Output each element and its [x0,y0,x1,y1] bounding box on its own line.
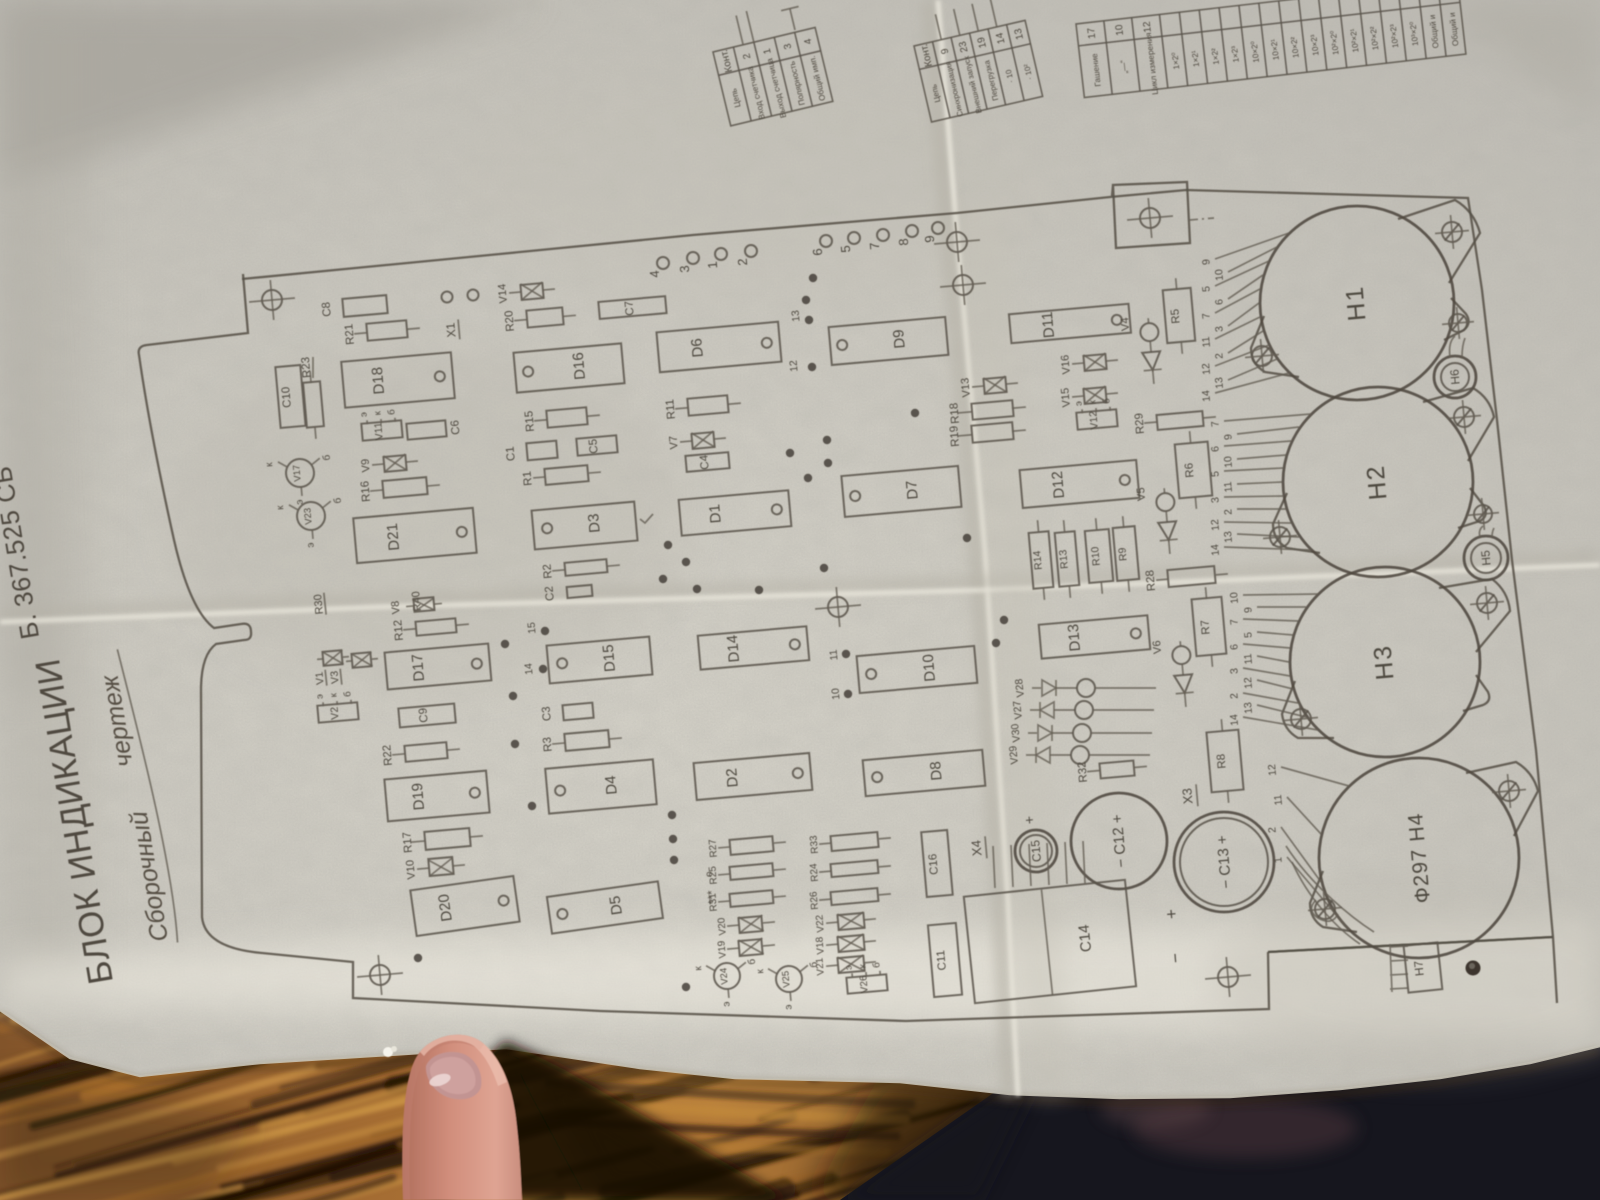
svg-text:8: 8 [896,238,912,247]
svg-text:C3: C3 [541,706,554,722]
svg-text:V28: V28 [1013,678,1027,698]
svg-text:+: + [1162,908,1182,920]
svg-text:3: 3 [1228,667,1240,674]
svg-text:C10: C10 [280,386,294,408]
svg-text:D14: D14 [724,634,743,663]
svg-text:2: 2 [735,258,751,267]
svg-text:C8: C8 [321,301,334,317]
svg-text:D15: D15 [600,644,619,673]
svg-text:C6: C6 [449,420,462,436]
svg-text:10: 10 [1213,268,1226,281]
svg-text:V15: V15 [1059,387,1073,408]
svg-text:10: 10 [1228,591,1241,604]
svg-text:V6: V6 [1151,640,1164,654]
svg-text:C16: C16 [927,853,941,875]
svg-text:R33: R33 [808,834,821,854]
svg-text:C4: C4 [698,454,711,470]
svg-text:R12: R12 [392,619,406,641]
svg-text:6: 6 [810,248,826,257]
svg-text:10: 10 [830,688,843,701]
svg-text:V9: V9 [360,458,373,472]
svg-text:13: 13 [1242,701,1255,714]
svg-text:R7: R7 [1199,619,1212,635]
svg-text:V16: V16 [1059,354,1073,375]
svg-text:17: 17 [1086,27,1098,40]
svg-text:11: 11 [1242,653,1255,665]
svg-text:V4: V4 [1119,317,1132,331]
svg-text:R21: R21 [343,323,357,345]
svg-text:V1: V1 [313,671,326,685]
svg-text:11: 11 [1200,336,1213,348]
svg-text:7: 7 [1200,312,1212,319]
svg-text:D12: D12 [1049,470,1068,499]
svg-text:D16: D16 [570,352,589,381]
svg-text:D9: D9 [890,329,909,350]
svg-text:12: 12 [788,360,801,373]
svg-text:6: 6 [1228,643,1240,650]
svg-text:R17: R17 [401,831,415,853]
svg-text:11: 11 [828,649,841,661]
svg-text:9: 9 [922,235,938,244]
svg-text:−: − [1166,952,1186,964]
svg-text:D8: D8 [927,761,946,782]
svg-text:R24: R24 [808,862,821,882]
svg-text:D7: D7 [903,480,922,501]
svg-text:+: + [1021,815,1038,825]
svg-text:V10: V10 [404,859,418,880]
svg-text:H7: H7 [1411,960,1427,977]
svg-text:1×2²: 1×2² [1210,47,1221,65]
svg-text:7: 7 [867,242,883,251]
svg-text:D1: D1 [706,503,725,524]
svg-text:D4: D4 [602,775,621,796]
svg-text:R11: R11 [664,399,678,420]
svg-text:D21: D21 [384,522,403,551]
svg-text:C9: C9 [417,707,430,723]
svg-text:D11: D11 [1039,311,1058,339]
svg-text:12: 12 [1266,763,1279,776]
svg-text:3: 3 [677,265,693,274]
svg-text:R27: R27 [707,838,720,858]
svg-text:5: 5 [838,245,854,254]
svg-text:14: 14 [523,663,536,676]
svg-text:H2: H2 [1361,463,1392,501]
svg-text:14: 14 [1209,543,1222,556]
svg-text:э: э [305,542,316,548]
svg-text:V12: V12 [1087,410,1101,430]
svg-text:V2: V2 [328,706,341,720]
svg-text:V18: V18 [814,936,827,955]
svg-text:„—“: „—“ [1119,59,1130,74]
svg-text:6: 6 [1213,298,1225,305]
svg-text:R15: R15 [523,410,537,432]
svg-text:2: 2 [1228,692,1240,699]
svg-text:R26: R26 [808,890,821,910]
svg-text:R10: R10 [1089,546,1103,566]
svg-text:R28: R28 [1144,570,1158,592]
svg-text:3: 3 [1213,325,1225,332]
svg-text:V27: V27 [1011,700,1025,720]
svg-text:5: 5 [1242,631,1254,638]
svg-text:D3: D3 [585,513,604,534]
svg-text:C1: C1 [505,446,518,462]
svg-text:14: 14 [1200,389,1213,402]
svg-text:R14: R14 [1031,550,1045,570]
svg-text:R18: R18 [948,402,962,424]
svg-text:V26: V26 [858,974,871,993]
svg-text:э: э [721,1001,732,1007]
svg-text:D19: D19 [409,782,428,811]
svg-text:R13: R13 [1057,549,1071,569]
svg-text:9: 9 [1200,258,1212,265]
svg-text:6: 6 [1209,445,1221,452]
svg-text:15: 15 [526,622,539,635]
svg-text:9: 9 [1222,433,1234,440]
svg-text:V29: V29 [1007,745,1021,765]
svg-text:э: э [783,1004,794,1010]
svg-text:X4: X4 [968,840,984,857]
svg-text:5: 5 [1200,285,1212,292]
svg-text:2: 2 [1222,508,1234,515]
svg-text:V7: V7 [668,435,681,449]
svg-text:V22: V22 [814,914,827,933]
svg-text:C5: C5 [587,438,600,454]
svg-text:12: 12 [1200,362,1213,375]
svg-text:V3: V3 [328,670,341,684]
svg-text:12: 12 [1209,518,1222,531]
svg-text:V5: V5 [1135,487,1148,501]
svg-text:R20: R20 [503,310,517,332]
svg-text:H1: H1 [1340,284,1371,322]
svg-text:***: *** [704,889,719,905]
svg-text:D13: D13 [1065,623,1084,652]
svg-text:R5: R5 [1169,308,1182,324]
svg-text:D2: D2 [723,767,742,788]
svg-text:Н6: Н6 [1447,368,1462,385]
svg-text:R1: R1 [522,471,535,487]
svg-text:2: 2 [1266,826,1278,833]
svg-text:V17: V17 [291,464,303,482]
svg-text:C11: C11 [935,950,949,971]
svg-text:R8: R8 [1215,753,1228,769]
svg-text:7: 7 [1228,618,1240,625]
svg-text:1: 1 [705,261,721,270]
svg-text:14: 14 [1228,713,1241,726]
svg-text:13: 13 [1213,376,1226,389]
svg-text:C14: C14 [1075,924,1095,953]
svg-text:Н5: Н5 [1478,549,1493,566]
svg-text:2: 2 [1213,352,1225,359]
svg-text:R16: R16 [359,480,373,502]
svg-text:H3: H3 [1368,643,1399,681]
svg-text:V13: V13 [959,377,973,398]
svg-text:11: 11 [1272,794,1285,806]
svg-text:D10: D10 [920,653,939,682]
svg-text:D18: D18 [369,366,388,395]
svg-text:R3: R3 [542,737,555,753]
svg-text:R29: R29 [1133,412,1147,434]
svg-text:13: 13 [790,310,803,323]
svg-text:R32: R32 [1076,761,1090,783]
svg-text:R2: R2 [542,563,555,579]
svg-text:V8: V8 [390,600,403,614]
svg-text:C7: C7 [623,300,636,316]
svg-text:1×2¹: 1×2¹ [1190,50,1201,68]
svg-text:R9: R9 [1116,547,1129,562]
svg-text:3: 3 [1209,496,1221,503]
svg-text:10: 10 [1114,23,1126,36]
svg-text:12: 12 [1242,676,1255,689]
svg-text:V11: V11 [372,422,386,441]
svg-text:D17: D17 [409,653,428,682]
svg-text:V24: V24 [718,967,730,985]
svg-text:9: 9 [1242,606,1254,613]
svg-text:10: 10 [1222,455,1235,468]
svg-text:V20: V20 [716,917,729,936]
svg-text:D6: D6 [688,338,707,359]
svg-text:1×2³: 1×2³ [1230,45,1241,63]
svg-text:D5: D5 [606,895,626,916]
svg-text:V23: V23 [302,507,314,525]
svg-text:X1: X1 [443,322,458,338]
svg-text:12: 12 [1142,20,1154,33]
svg-text:11: 11 [1222,481,1235,493]
svg-text:C2: C2 [543,586,556,602]
svg-text:V25: V25 [780,970,792,988]
svg-text:V19: V19 [716,940,729,959]
svg-text:V14: V14 [496,283,510,304]
svg-text:13: 13 [1222,530,1235,543]
svg-text:4: 4 [647,270,663,279]
svg-text:R22: R22 [381,744,395,766]
svg-text:X3: X3 [1179,788,1195,805]
svg-text:R19: R19 [948,425,962,447]
svg-text:V30: V30 [1009,723,1023,743]
svg-text:R6: R6 [1183,462,1196,478]
svg-text:7: 7 [1209,420,1221,427]
